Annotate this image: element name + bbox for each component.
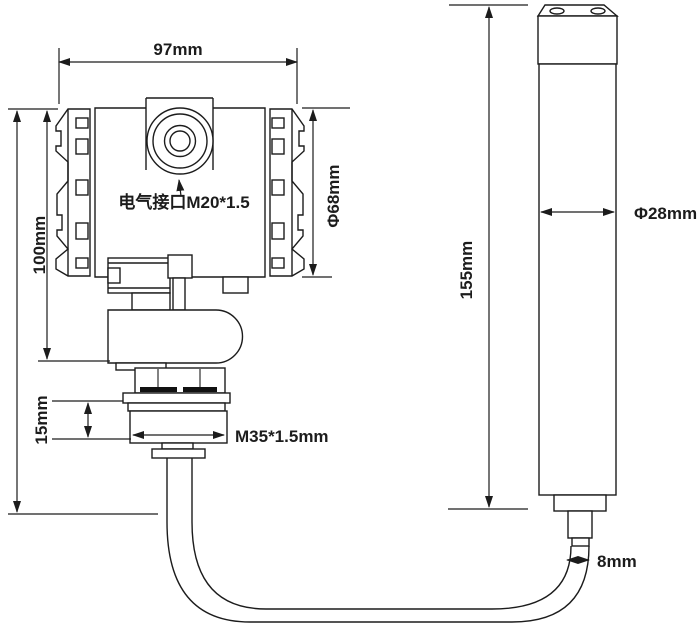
- cable-tube: [167, 458, 192, 522]
- housing-height-label: 100mm: [30, 216, 49, 275]
- housing-ear-left: [56, 109, 90, 276]
- cable-diameter-label: 8mm: [597, 552, 637, 571]
- probe-diameter-label: Φ28mm: [634, 204, 697, 223]
- cable-gland-step: [572, 538, 589, 546]
- cable-gland: [568, 511, 592, 538]
- seal-right: [183, 387, 217, 392]
- level-probe: [538, 5, 617, 546]
- diagram-canvas: 97mm 100mm Φ68mm 电气接口M20*1.5 15mm M35*1.…: [0, 0, 700, 629]
- process-connection: [108, 310, 243, 522]
- dim-housing-width: 97mm: [59, 40, 297, 104]
- connection-cable: [167, 522, 589, 622]
- dim-probe-length: 155mm: [448, 5, 528, 509]
- dim-housing-diameter: Φ68mm: [302, 108, 350, 277]
- probe-body: [539, 64, 616, 495]
- terminal-bracket: [108, 255, 248, 310]
- housing-width-label: 97mm: [153, 40, 202, 59]
- callout-electrical-interface: 电气接口M20*1.5: [118, 180, 249, 212]
- transmitter-housing: [56, 98, 304, 522]
- technical-drawing: 97mm 100mm Φ68mm 电气接口M20*1.5 15mm M35*1.…: [0, 0, 700, 629]
- housing-ear-right: [270, 109, 304, 276]
- thread-height-label: 15mm: [32, 395, 51, 444]
- electrical-interface-label: 电气接口M20*1.5: [118, 192, 249, 212]
- probe-cap: [538, 16, 617, 64]
- thread-nut: [130, 411, 227, 443]
- mounting-thread-label: M35*1.5mm: [235, 427, 329, 446]
- seal-left: [140, 387, 177, 392]
- probe-bottom-block: [554, 495, 606, 511]
- electrical-port-circles: [147, 108, 213, 174]
- housing-diameter-label: Φ68mm: [324, 164, 343, 227]
- probe-length-label: 155mm: [457, 241, 476, 300]
- dim-thread-height: 15mm: [32, 395, 131, 444]
- dim-cable-diameter: 8mm: [567, 552, 637, 571]
